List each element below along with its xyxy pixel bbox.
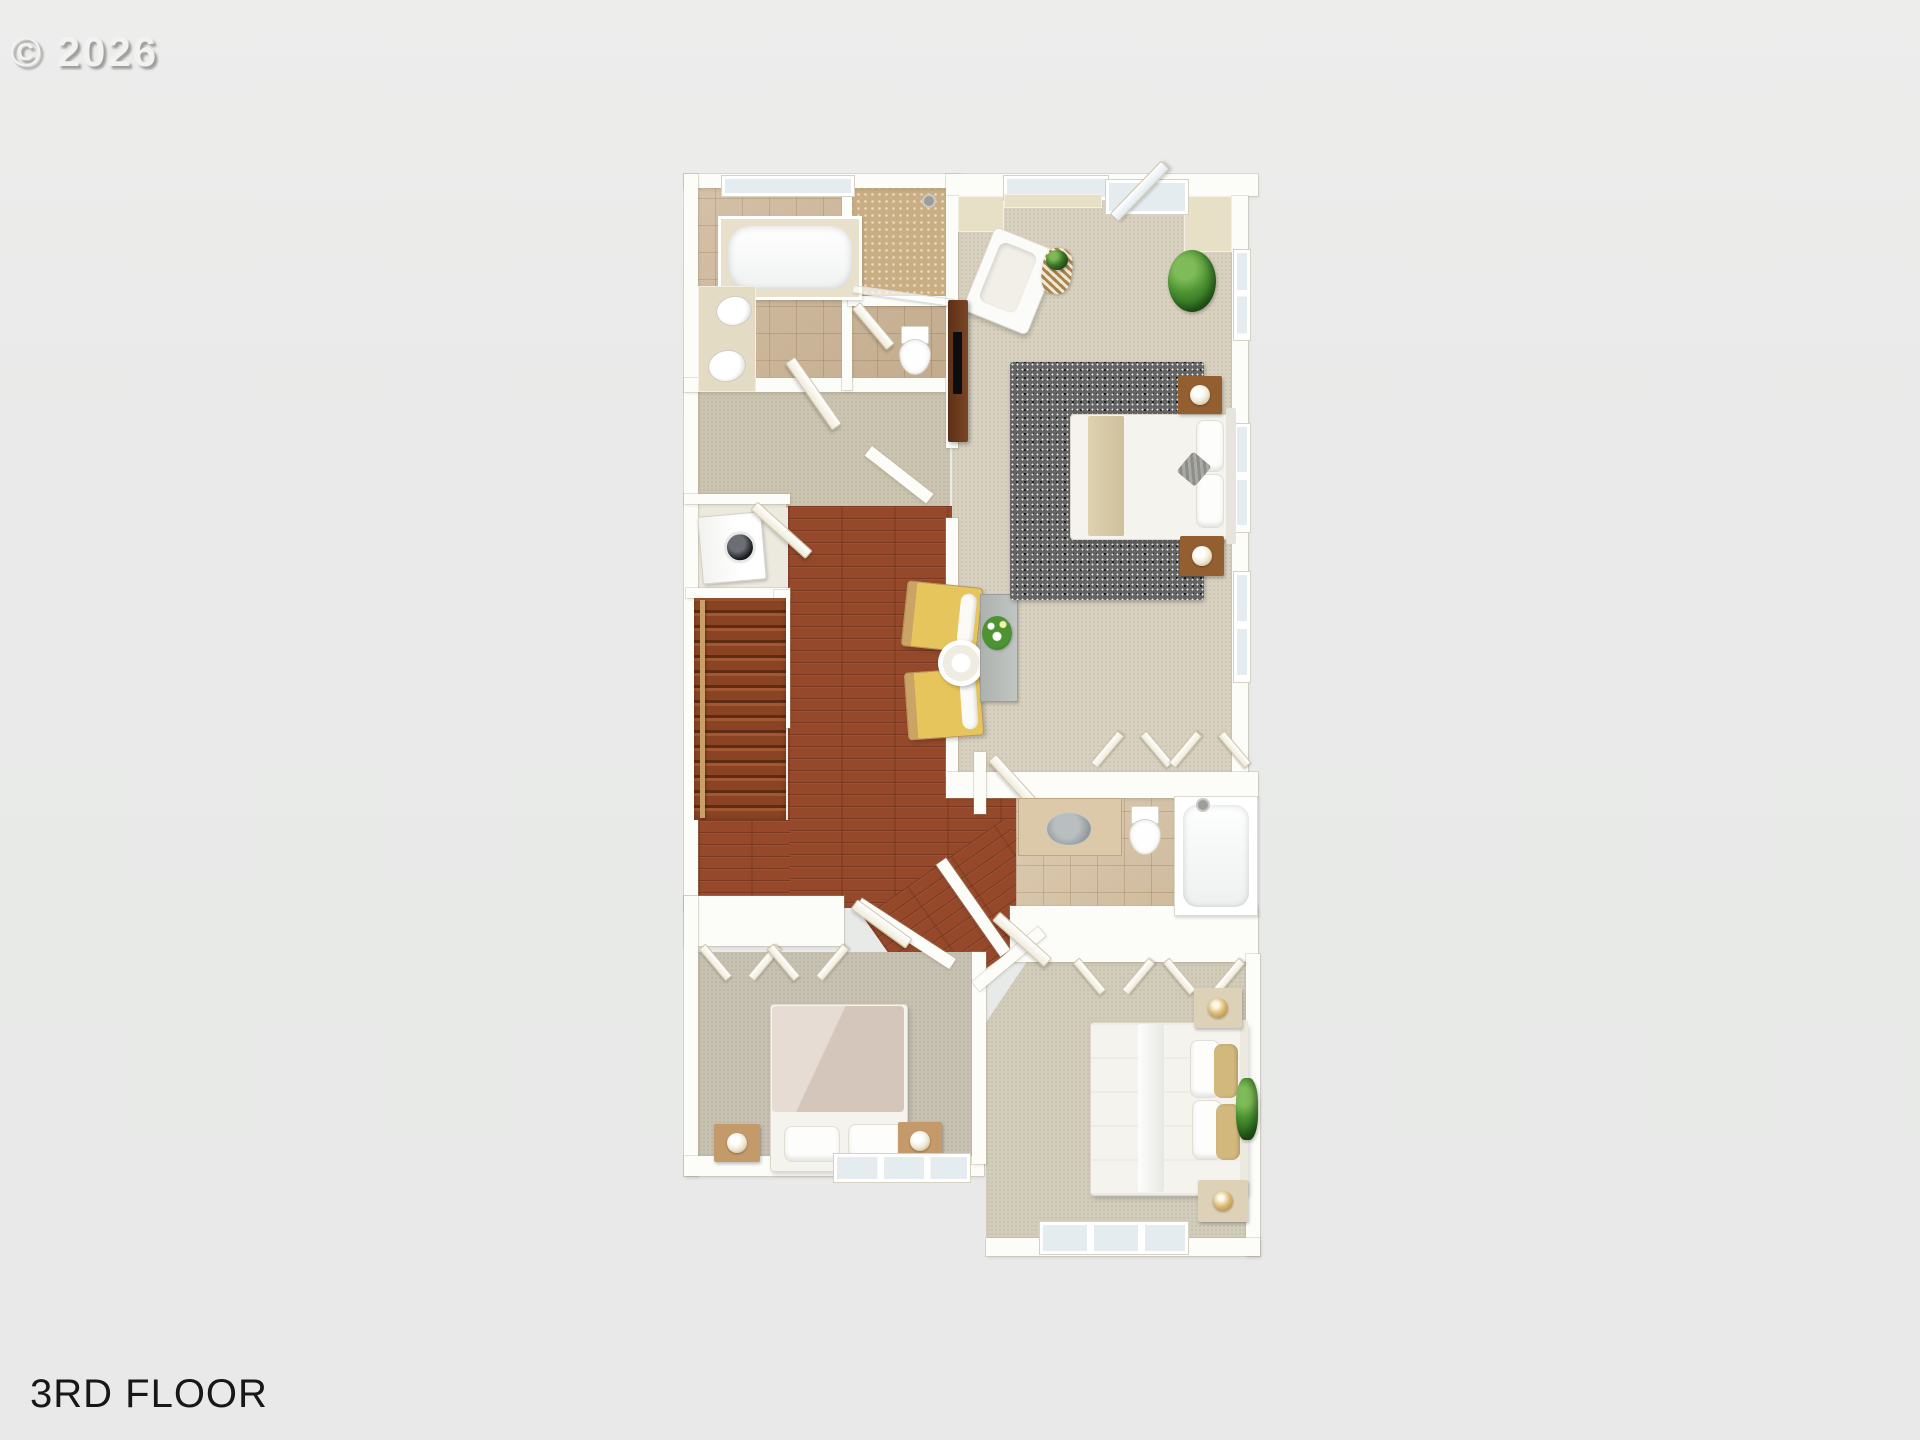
washer-dryer: [697, 511, 767, 584]
floorplan: [0, 0, 1920, 1440]
bedroom2-window: [834, 1154, 970, 1182]
bedroom3-tan-pillow-1: [1214, 1044, 1238, 1098]
wall-bed2-closet-block: [684, 896, 844, 946]
shower-head: [924, 196, 934, 206]
potted-plant: [1168, 250, 1216, 312]
bedroom3-window: [1040, 1222, 1188, 1254]
closet-door-panel: [1091, 730, 1125, 768]
closet-door-panel: [1169, 730, 1203, 768]
flower-vase: [982, 616, 1012, 650]
wall-hall-laundry: [684, 494, 790, 504]
hall-bath-toilet: [1128, 806, 1162, 856]
wall-master-south: [946, 772, 1258, 798]
round-side-table: [938, 640, 984, 686]
side-table-plant: [1046, 250, 1068, 270]
wc-toilet: [898, 326, 932, 376]
master-east-window-3: [1234, 572, 1250, 682]
wall-bath-vestibule: [974, 752, 986, 814]
screenshot-root: { "watermark": { "text": "© 2026" }, "ca…: [0, 0, 1920, 1440]
master-bay-sill: [1004, 194, 1102, 208]
master-east-window-2: [1234, 424, 1250, 532]
closet-door-panel: [1218, 730, 1252, 768]
wall-face-master-ne: [1184, 196, 1232, 252]
closet-door-panel: [1163, 958, 1197, 996]
bedroom3-nightstand-2: [1198, 1180, 1248, 1222]
master-bed-pillow-2: [1196, 474, 1224, 528]
bedroom2-duvet: [772, 1006, 904, 1112]
bedroom2-pillow-1: [784, 1126, 840, 1162]
floor-caption: 3RD FLOOR: [30, 1372, 268, 1417]
bedroom3-drape: [1138, 1024, 1164, 1192]
master-headboard: [1226, 408, 1236, 544]
hall-shower-head: [1198, 800, 1208, 810]
master-closet-1: [1094, 730, 1170, 770]
closet-door-panel: [699, 944, 733, 982]
loft-floor-west: [698, 820, 790, 906]
copyright-watermark: © 2026: [10, 28, 158, 76]
stair-handrail: [700, 600, 705, 818]
master-bed-throw: [1088, 416, 1124, 536]
closet-door-panel: [816, 944, 850, 982]
master-nightstand-1: [1178, 376, 1222, 414]
bedroom2-closet-2: [770, 942, 846, 982]
closet-door-panel: [767, 944, 801, 982]
staircase: [694, 598, 786, 820]
hall-bathtub: [1174, 796, 1258, 916]
bedroom3-plant: [1236, 1078, 1258, 1140]
wall-face-master-north: [958, 196, 1004, 232]
bedroom2-nightstand-1: [714, 1124, 760, 1162]
master-east-window-1: [1234, 250, 1250, 340]
bedroom3-nightstand-1: [1194, 988, 1242, 1028]
master-nightstand-2: [1180, 536, 1224, 576]
closet-door-panel: [1122, 958, 1156, 996]
wall-bed2-west: [684, 896, 698, 1176]
hall-bath-sink: [1046, 812, 1092, 846]
tv-dresser: [948, 300, 968, 442]
bedroom3-closet-1: [1076, 956, 1152, 996]
master-closet-2: [1172, 730, 1248, 770]
closet-door-panel: [1073, 958, 1107, 996]
bath-window: [722, 176, 854, 196]
